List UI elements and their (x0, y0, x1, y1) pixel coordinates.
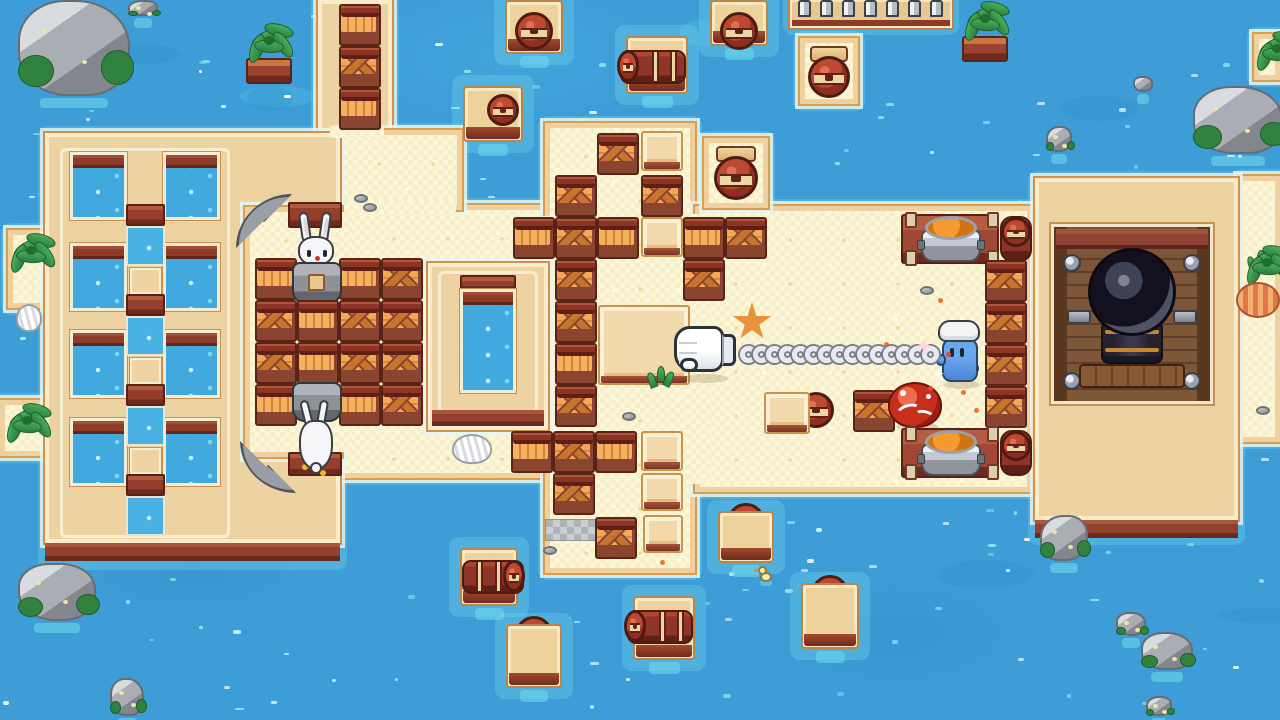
pebble (920, 286, 934, 295)
dock-mid-pool (126, 496, 165, 536)
crate-base (643, 177, 681, 188)
rock (1146, 696, 1172, 716)
barrel (714, 156, 758, 200)
rock (1116, 612, 1146, 636)
rock-fleck (1172, 657, 1177, 661)
water-sparkle (435, 43, 442, 46)
crate-x (381, 258, 423, 300)
crate-base (599, 219, 637, 230)
duck (758, 566, 774, 584)
rock (1046, 126, 1072, 152)
crate-v (513, 217, 555, 259)
palm-tree (0, 402, 56, 462)
water-sparkle (1125, 125, 1130, 128)
water-sparkle (284, 95, 291, 98)
moss (1260, 122, 1280, 146)
cannon-band (1105, 348, 1159, 352)
palm-tree (1250, 30, 1280, 90)
crate-base (257, 344, 295, 355)
dock-water-hole (163, 152, 220, 220)
rock-fleck (1213, 107, 1218, 111)
wake (1122, 638, 1140, 648)
rabbit-diving (290, 382, 344, 478)
water-sparkle (892, 640, 898, 644)
water-sparkle (1223, 63, 1230, 66)
sand-speck (974, 408, 979, 413)
pink-shell (1236, 282, 1280, 318)
rock-fleck (63, 600, 68, 604)
tan-block (641, 473, 683, 511)
crate-base (299, 302, 337, 313)
chef-character (936, 320, 986, 390)
crate-v (339, 88, 381, 130)
dock-mid-lintel (126, 474, 165, 496)
crate-x (985, 344, 1027, 386)
game-canvas[interactable] (0, 0, 1280, 720)
crate-base (987, 262, 1025, 273)
palm-center (980, 14, 990, 23)
water-sparkle (723, 694, 732, 697)
crate-x (595, 517, 637, 559)
pot-soup (925, 430, 977, 454)
moss (1141, 655, 1158, 668)
pool-base (432, 410, 544, 426)
rock-fleck (36, 581, 41, 585)
crate-x (597, 133, 639, 175)
wake (34, 623, 81, 633)
water-patch (247, 86, 293, 111)
cannon-bolt (1063, 254, 1081, 272)
dock-mid-window (130, 448, 161, 474)
water-sparkle (408, 595, 415, 599)
water-patch (937, 560, 1034, 589)
pot-handle (977, 454, 985, 464)
crate-base (341, 344, 379, 355)
barrel-face (617, 50, 639, 82)
duck-head (758, 566, 767, 575)
dock-mid-pool (126, 406, 165, 446)
moss (1167, 708, 1175, 715)
water-sparkle (869, 565, 877, 568)
water-sparkle (126, 600, 129, 603)
water-sparkle (199, 61, 207, 64)
glove-cuff (722, 334, 736, 366)
water-sparkle (1033, 154, 1040, 156)
crate-base (987, 304, 1025, 315)
barrel (515, 12, 553, 50)
tan-block (641, 217, 683, 257)
pot-handle (977, 240, 985, 250)
water-sparkle (725, 618, 732, 621)
water-sparkle (589, 111, 597, 114)
barrel-face (624, 610, 646, 642)
cannon (1051, 224, 1213, 404)
water-sparkle (816, 528, 821, 532)
water-sparkle (464, 70, 471, 74)
crate-base (557, 261, 595, 272)
rock-fleck (1245, 129, 1250, 133)
rock (1040, 515, 1088, 561)
barrel-face (503, 560, 525, 592)
crate-x (641, 175, 683, 217)
crab-highlight (900, 390, 906, 396)
cannon-axle-right (1173, 310, 1197, 324)
water-sparkle (480, 178, 486, 180)
barrel-side (627, 610, 693, 644)
crate-base (383, 302, 421, 313)
water-sparkle (1203, 648, 1207, 650)
crate-x (339, 46, 381, 88)
rock (1193, 86, 1280, 154)
moss (110, 701, 121, 714)
crate-base (685, 261, 723, 272)
crate-base (599, 135, 637, 146)
barrel-face (1001, 217, 1031, 247)
checker-pad (545, 519, 599, 541)
rabbit-nose (315, 256, 320, 261)
wake (478, 144, 508, 156)
wake (40, 98, 107, 108)
water-sparkle (224, 686, 230, 689)
palm-center (1262, 258, 1272, 267)
water-sparkle (1191, 74, 1197, 77)
rock (128, 0, 158, 16)
cannon-muzzle (1088, 248, 1176, 336)
water-sparkle (332, 679, 336, 683)
crate-base (557, 219, 595, 230)
pipe-elbow (236, 194, 292, 248)
water-sparkle (626, 678, 631, 681)
crate-v (297, 300, 339, 342)
barrel (808, 56, 850, 98)
crate-base (383, 386, 421, 397)
rock-fleck (1135, 628, 1140, 632)
water-sparkle (170, 578, 176, 581)
barrel-side (462, 560, 524, 594)
crate-base (341, 386, 379, 397)
dock-water-hole (163, 418, 220, 486)
crate-x (339, 342, 381, 384)
rock-fleck (42, 29, 47, 33)
moss (1180, 653, 1196, 667)
water-patch (1060, 96, 1138, 120)
water-sparkle (574, 621, 580, 623)
impact-dot (946, 352, 951, 357)
barrel (720, 12, 758, 50)
crate-base (685, 219, 723, 230)
crate-base (987, 346, 1025, 357)
water-sparkle (807, 559, 814, 562)
water-sparkle (149, 639, 154, 641)
barrel-raft (718, 511, 774, 563)
crate-base (341, 260, 379, 271)
rock (110, 678, 144, 716)
crate-base (383, 344, 421, 355)
rabbit-eye (307, 250, 311, 257)
bench-post (987, 426, 999, 442)
ear-inner (323, 218, 329, 236)
crate-v (595, 431, 637, 473)
crate-v (683, 217, 725, 259)
barrel-strap (476, 562, 483, 591)
crate-x (553, 473, 595, 515)
pot-soup (925, 216, 977, 240)
crate-base (341, 48, 379, 59)
barrel-raft (801, 583, 859, 649)
glove-thumb (680, 358, 698, 372)
water-sparkle (3, 701, 9, 705)
water-sparkle (89, 110, 94, 112)
water-sparkle (837, 692, 844, 696)
water-sparkle (935, 607, 942, 610)
dock-water-hole (70, 243, 127, 311)
dock-mid-lintel (126, 384, 165, 406)
dock-water-hole (163, 243, 220, 311)
crate-x (381, 300, 423, 342)
rock-fleck (1124, 621, 1129, 625)
pipe-curve (243, 444, 293, 490)
water-sparkle (1006, 569, 1010, 572)
water-sparkle (233, 630, 241, 633)
rock (1141, 632, 1193, 670)
water-sparkle (1259, 579, 1264, 583)
bench-post (987, 212, 999, 228)
crate-base (515, 219, 553, 230)
wake (642, 96, 673, 108)
rock (18, 0, 130, 96)
crate-x (555, 385, 597, 427)
crate-base (341, 90, 379, 101)
crate-v (511, 431, 553, 473)
water-sparkle (1018, 658, 1024, 661)
palm-tree (242, 22, 298, 82)
barrel-face (1001, 431, 1031, 461)
crate-x (339, 300, 381, 342)
moss (1140, 626, 1149, 635)
dock-water-hole (70, 152, 127, 220)
rock-fleck (1052, 530, 1057, 534)
dock-mid-window (130, 358, 161, 384)
dock-mid-pool (126, 316, 165, 356)
palm-center (26, 246, 36, 255)
crate-x (555, 217, 597, 259)
wake (520, 56, 549, 68)
pier-post (864, 0, 877, 17)
bench-post (905, 212, 917, 228)
crate-base (513, 433, 551, 444)
crate-base (987, 388, 1025, 399)
rock-fleck (1153, 645, 1158, 649)
crate-x (985, 302, 1027, 344)
crate-base (299, 344, 337, 355)
rock-fleck (1153, 704, 1158, 708)
pebble (622, 412, 636, 421)
pier-post (798, 0, 811, 17)
sand-speck (660, 560, 665, 565)
crate-base (341, 6, 379, 17)
water-sparkle (271, 701, 278, 704)
water-sparkle (1106, 551, 1112, 555)
wake (649, 662, 680, 674)
crate-base (341, 302, 379, 313)
bench-post (905, 250, 917, 266)
wake (134, 18, 152, 28)
water-sparkle (1261, 458, 1269, 461)
rock-fleck (131, 703, 136, 707)
crate-base (557, 345, 595, 356)
dock-mid-window (130, 268, 161, 294)
duck-beak (754, 569, 759, 572)
moss (1193, 125, 1222, 148)
tan-block (641, 131, 683, 171)
barrel-strap (677, 612, 684, 641)
water-sparkle (943, 522, 949, 525)
pier-post (930, 0, 943, 17)
wake (520, 690, 548, 702)
pot-handle (917, 240, 925, 250)
water-patch (1217, 608, 1280, 623)
barrel-strap (670, 52, 677, 81)
water-sparkle (590, 705, 594, 709)
dock-water-hole (70, 418, 127, 486)
water-sparkle (886, 103, 894, 106)
rock-fleck (136, 6, 141, 10)
water-sparkle (235, 708, 243, 710)
chef-body (942, 338, 978, 382)
water-sparkle (1119, 108, 1127, 112)
pier (790, 0, 952, 28)
water-sparkle (986, 509, 993, 512)
water-sparkle (199, 626, 202, 629)
white-shell (452, 434, 492, 464)
water-sparkle (221, 105, 226, 108)
barrel-strap (495, 562, 502, 591)
white-shell (16, 304, 42, 332)
pot-handle (917, 454, 925, 464)
barrel-strap (659, 612, 666, 641)
water-sparkle (1014, 511, 1017, 514)
shadow (684, 374, 728, 383)
water-sparkle (29, 196, 35, 198)
moss (152, 10, 161, 16)
crate-base (257, 302, 295, 313)
moss (101, 50, 135, 85)
crate-base (727, 219, 765, 230)
crab-knocked-out (888, 382, 944, 430)
palm-center (1272, 44, 1280, 53)
pebble (1256, 406, 1270, 415)
rock-fleck (82, 60, 87, 64)
left-dock-base (45, 543, 340, 561)
moss (18, 597, 43, 617)
water-sparkle (1134, 165, 1138, 169)
crate-x (985, 260, 1027, 302)
rock-fleck (1162, 710, 1167, 714)
barrel-strap (652, 52, 659, 81)
impact-dot (928, 386, 933, 391)
water-sparkle (20, 337, 26, 340)
pier-post (886, 0, 899, 17)
crate-x (555, 301, 597, 343)
water-sparkle (590, 662, 599, 665)
crate-x (683, 259, 725, 301)
water-sparkle (742, 589, 748, 591)
pier-post (908, 0, 921, 17)
crate-v (297, 342, 339, 384)
moss (1067, 141, 1075, 150)
crate-x (553, 431, 595, 473)
water-sparkle (599, 63, 606, 66)
pier-post (820, 0, 833, 17)
water-sparkle (1233, 666, 1239, 669)
tan-block (764, 392, 810, 434)
water-sparkle (930, 151, 934, 154)
crate-v (555, 343, 597, 385)
crate-v (339, 4, 381, 46)
rabbit-tail (310, 462, 322, 474)
pebble (354, 194, 368, 203)
moss (1077, 540, 1091, 557)
barrel-vertical (1000, 430, 1032, 476)
dock-water-hole (163, 330, 220, 398)
rabbit-sitting (290, 212, 344, 308)
crab-highlight (926, 394, 931, 399)
tan-block (641, 431, 683, 471)
dock-mid-lintel (126, 294, 165, 316)
bench-post (905, 426, 917, 442)
pier-post (842, 0, 855, 17)
barrel-side (620, 50, 686, 84)
moss (1146, 709, 1154, 716)
sand-speck (938, 298, 943, 303)
water-sparkle (1037, 102, 1045, 105)
rock (1133, 76, 1153, 92)
rock-fleck (1053, 135, 1058, 139)
wake (1137, 94, 1149, 104)
sand-speck (961, 390, 966, 395)
chef-eye (960, 348, 964, 357)
rock-fleck (147, 12, 152, 16)
moss (1116, 627, 1126, 635)
moss (1040, 542, 1055, 558)
wake (816, 651, 845, 663)
moss (128, 11, 138, 16)
pebble (363, 203, 377, 212)
palm-tree (958, 0, 1014, 60)
dock-mid-pool (126, 226, 165, 266)
crate-base (597, 519, 635, 530)
palm-tree (4, 232, 60, 292)
rock-fleck (119, 691, 124, 695)
water-sparkle (1090, 599, 1099, 601)
crate-x (255, 342, 297, 384)
crate-x (725, 217, 767, 259)
water-sparkle (1067, 694, 1071, 698)
pool-water (460, 289, 516, 393)
crate-x (555, 259, 597, 301)
moss (76, 594, 99, 615)
crate-base (383, 260, 421, 271)
crate-base (557, 387, 595, 398)
wake (1211, 156, 1265, 166)
bench-post (905, 464, 917, 480)
wake (475, 608, 504, 620)
tan-block (643, 515, 683, 553)
crate-x (985, 386, 1027, 428)
boxing-glove (674, 326, 740, 382)
wake (1050, 563, 1079, 573)
rock-fleck (1068, 545, 1073, 549)
